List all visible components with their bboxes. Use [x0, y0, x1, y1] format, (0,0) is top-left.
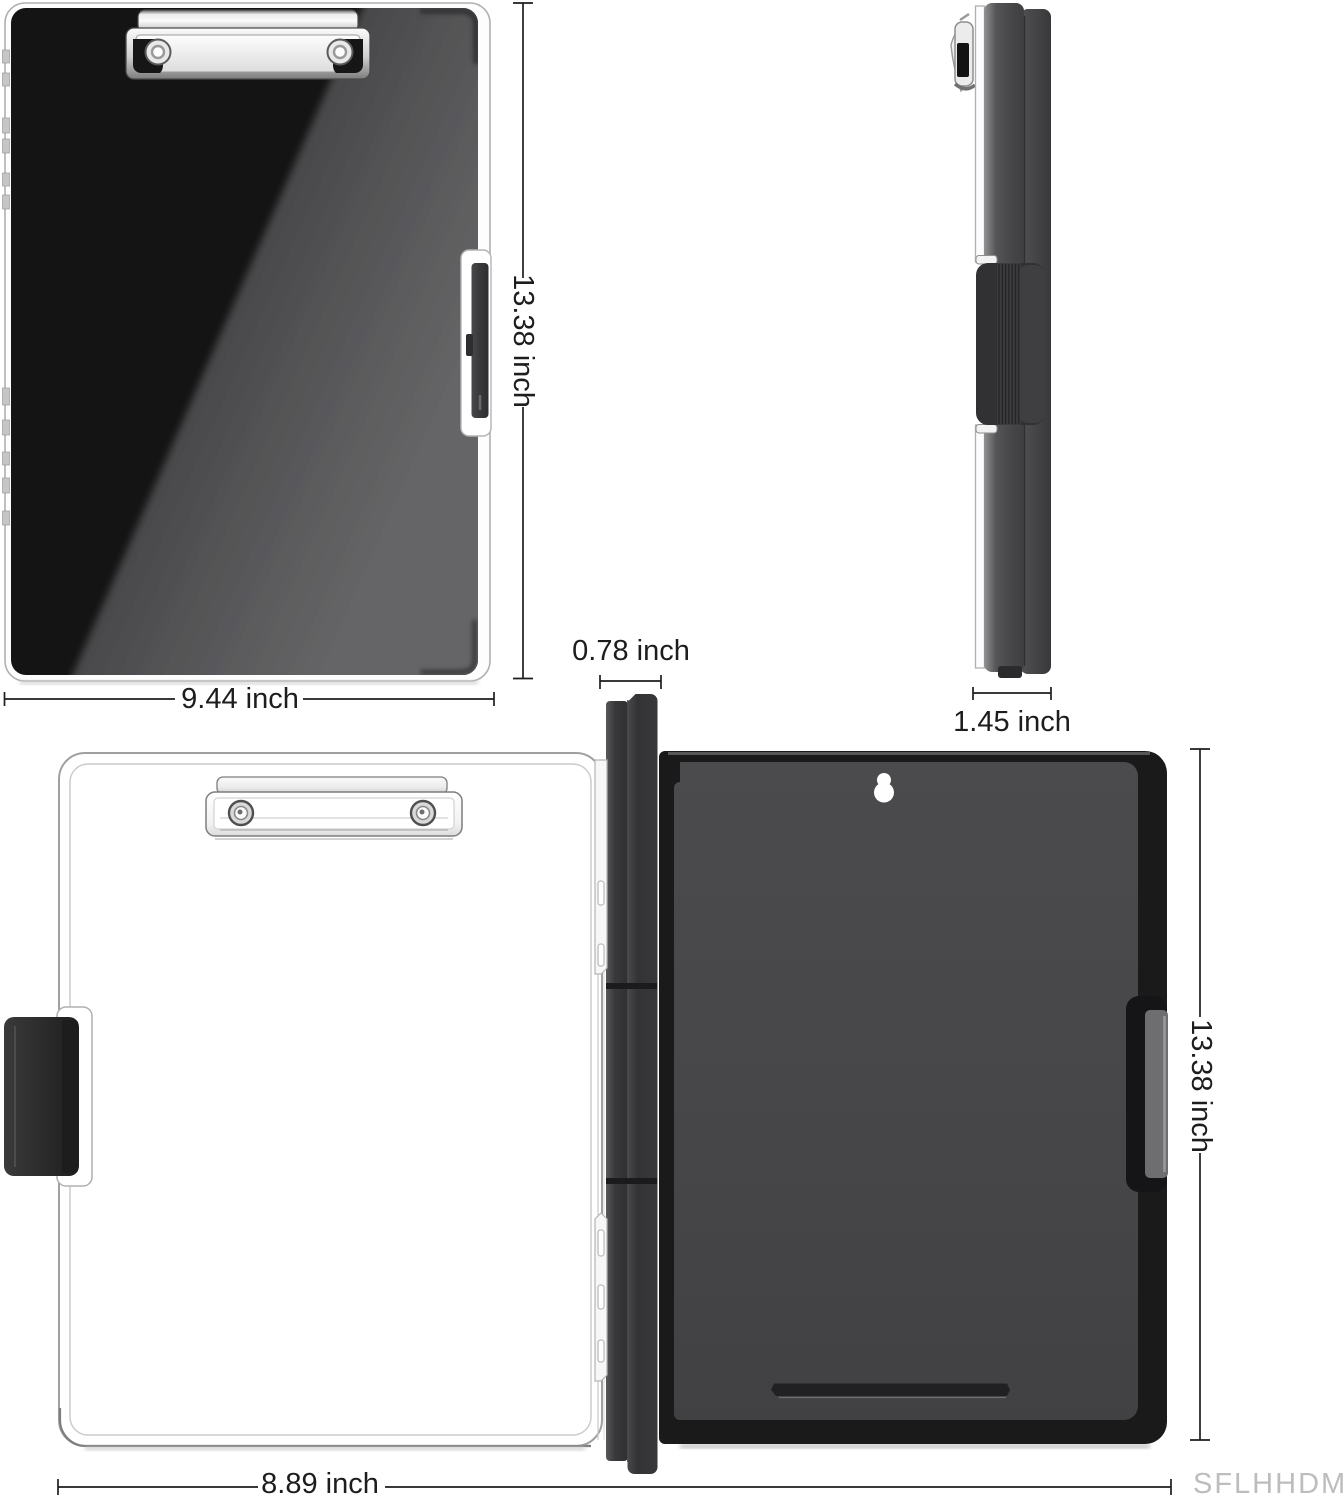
- svg-text:SFLHHDM: SFLHHDM: [1193, 1468, 1344, 1500]
- svg-text:8.89 inch: 8.89 inch: [261, 1468, 379, 1500]
- svg-text:13.38 inch: 13.38 inch: [1185, 1019, 1217, 1153]
- svg-text:1.45 inch: 1.45 inch: [953, 706, 1071, 738]
- svg-text:13.38 inch: 13.38 inch: [507, 274, 539, 408]
- svg-text:0.78 inch: 0.78 inch: [572, 635, 690, 667]
- svg-text:9.44 inch: 9.44 inch: [181, 683, 299, 715]
